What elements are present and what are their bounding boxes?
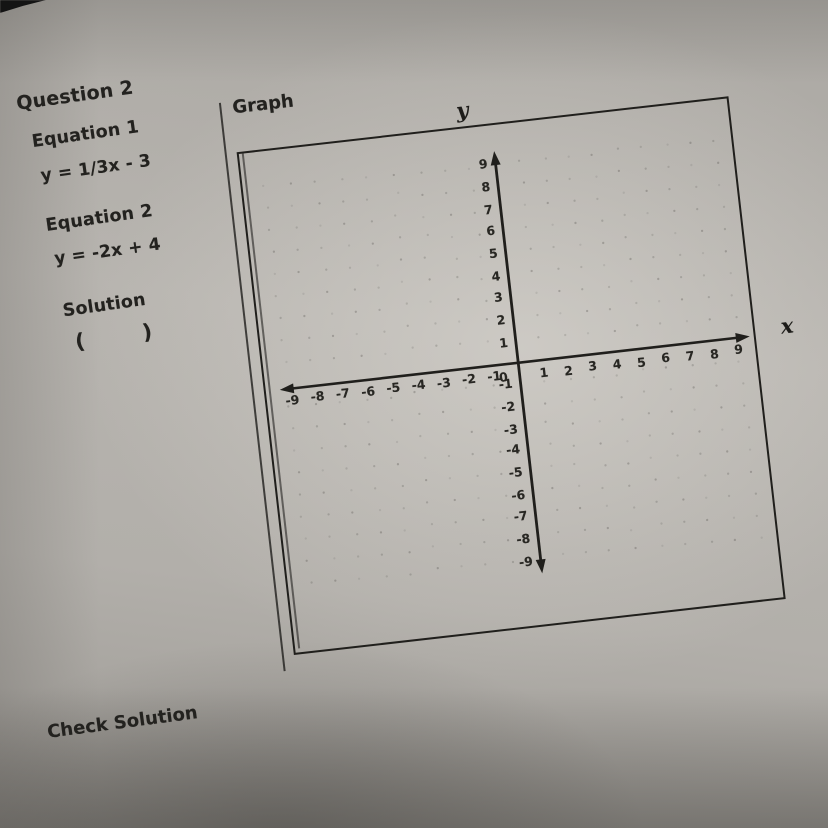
y-axis-label: y — [455, 97, 470, 123]
axes-and-dot-grid: -9-8-7-6-5-4-3-2-1123456789987654321-1-2… — [239, 98, 784, 652]
y-tick-label: 8 — [459, 179, 491, 198]
y-tick-label: 9 — [457, 156, 489, 175]
graph-section: Graph -9-8-7-6-5-4-3-2-11234567899876543… — [218, 29, 828, 740]
x-tick-label: 2 — [556, 362, 582, 381]
y-tick-label: 5 — [467, 245, 499, 264]
close-paren: ) — [141, 319, 154, 344]
worksheet-photo: Question 2 Equation 1 y = 1/3x - 3 Equat… — [0, 0, 828, 828]
y-tick-label: -2 — [484, 398, 516, 417]
x-tick-label: -9 — [280, 391, 306, 410]
solution-answer-blank: () — [74, 319, 154, 354]
y-tick-label: 7 — [462, 202, 494, 221]
y-tick-label: 2 — [475, 312, 507, 331]
open-paren: ( — [74, 329, 87, 354]
x-tick-label: 3 — [580, 357, 606, 376]
y-tick-label: 6 — [464, 223, 496, 242]
graph-section-label: Graph — [231, 91, 294, 119]
x-tick-label: -8 — [305, 387, 331, 406]
x-tick-label: -5 — [380, 378, 406, 397]
x-tick-label: 4 — [604, 355, 630, 374]
y-tick-label: -7 — [497, 508, 529, 527]
x-tick-label: -3 — [431, 374, 457, 393]
y-tick-label: -5 — [492, 464, 524, 483]
y-tick-label: -3 — [487, 421, 519, 440]
question-title: Question 2 — [15, 77, 135, 115]
y-tick-label: -8 — [500, 531, 532, 550]
x-tick-label: -7 — [330, 385, 356, 404]
x-tick-label: 8 — [702, 345, 728, 364]
y-tick-label: 1 — [477, 334, 509, 353]
x-tick-label: 5 — [629, 353, 655, 372]
y-tick-label: -6 — [495, 487, 527, 506]
equation1-formula: y = 1/3x - 3 — [39, 151, 152, 186]
x-tick-label: 1 — [531, 364, 557, 383]
worksheet-content: Question 2 Equation 1 y = 1/3x - 3 Equat… — [0, 0, 828, 828]
solution-label: Solution — [61, 290, 147, 321]
x-tick-label: 7 — [677, 347, 703, 366]
x-tick-label: 9 — [726, 341, 752, 360]
equation2-label: Equation 2 — [44, 201, 154, 236]
coordinate-plane: -9-8-7-6-5-4-3-2-1123456789987654321-1-2… — [237, 96, 786, 655]
y-tick-label: -9 — [502, 553, 534, 572]
y-tick-label: -4 — [489, 442, 521, 461]
y-tick-label: 4 — [470, 268, 502, 287]
x-axis-label: x — [779, 312, 794, 338]
y-tick-label: 3 — [472, 289, 504, 308]
equation1-label: Equation 1 — [31, 117, 141, 152]
check-solution-label: Check Solution — [46, 702, 199, 743]
x-tick-label: 6 — [653, 349, 679, 368]
x-tick-label: -6 — [355, 383, 381, 402]
x-tick-label: -2 — [456, 370, 482, 389]
x-tick-label: -4 — [406, 376, 432, 395]
equation2-formula: y = -2x + 4 — [53, 234, 162, 269]
origin-label: 0 — [491, 369, 509, 387]
